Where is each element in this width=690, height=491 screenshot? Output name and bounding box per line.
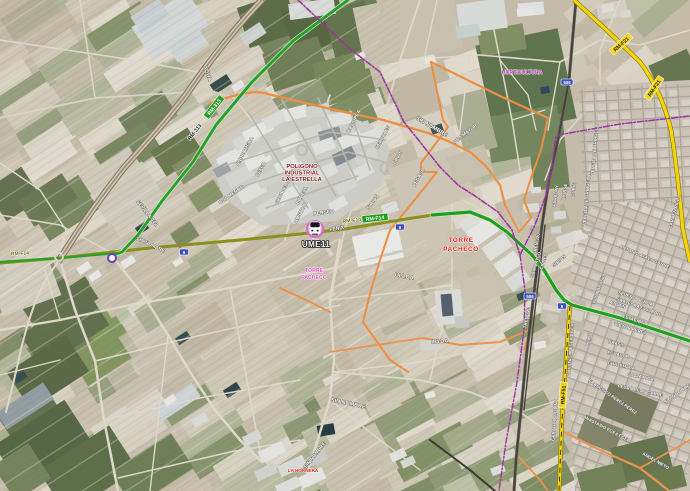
svg-text:506: 506 — [526, 294, 534, 299]
svg-text:HORTICULTURA: HORTICULTURA — [502, 70, 543, 76]
svg-text:PACHECO: PACHECO — [301, 275, 327, 281]
svg-text:UME11: UME11 — [302, 240, 330, 249]
svg-text:PACHECO: PACHECO — [443, 246, 479, 253]
svg-text:TORRE: TORRE — [448, 237, 473, 244]
svg-text:TORRE: TORRE — [305, 268, 324, 274]
svg-text:INDUSTRIAL: INDUSTRIAL — [284, 171, 320, 177]
svg-text:506: 506 — [563, 80, 571, 85]
svg-text:LA HORNERA: LA HORNERA — [288, 468, 319, 473]
svg-text:RM-F14: RM-F14 — [11, 251, 29, 258]
svg-text:POLIGONO: POLIGONO — [286, 164, 318, 170]
svg-text:LA ESTRELLA: LA ESTRELLA — [282, 177, 323, 183]
